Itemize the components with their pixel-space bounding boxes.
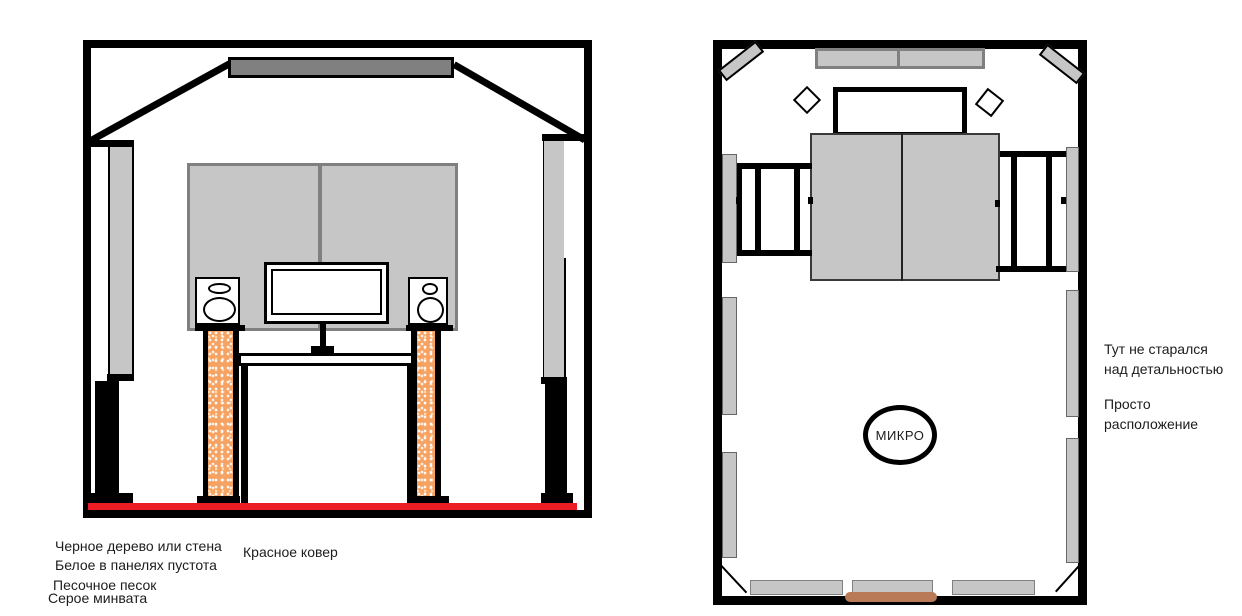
plan-ladder-right-rail-bottom: [996, 266, 1066, 272]
plan-nub-right-wall: [1061, 197, 1066, 204]
plan-wall-strip-left-1: [722, 154, 737, 263]
plan-nub-right-desk: [995, 200, 1000, 207]
wall-panel-left-cap-bottom: [107, 374, 134, 381]
note-detail-line-1: Тут не старался: [1104, 340, 1208, 358]
legend-mineral-wool: Серое минвата: [48, 589, 147, 607]
plan-desk-divider: [901, 133, 903, 281]
legend-red-carpet: Красное ковер: [243, 543, 338, 561]
plan-ladder-right-bar-1: [1011, 151, 1017, 272]
pillar-left: [95, 381, 119, 495]
plan-bottom-panel-1: [750, 580, 843, 595]
stand-right-pole-outer: [435, 331, 441, 496]
pillar-right-base: [541, 493, 573, 503]
wall-panel-right-edge-line: [564, 258, 566, 379]
mic-circle: МИКРО: [863, 405, 937, 465]
plan-nub-left-wall: [736, 197, 741, 204]
plan-ladder-left-rail-top: [734, 163, 812, 169]
paint-canvas: Черное дерево или стена Белое в панелях …: [0, 0, 1242, 616]
plan-wall-strip-right-3: [1066, 438, 1079, 563]
legend-black-wood: Черное дерево или стена: [55, 537, 222, 555]
note-detail-line-2: над детальностью: [1104, 360, 1223, 378]
plan-ladder-left-bar-2: [755, 163, 761, 256]
speaker-left-tweeter-icon: [208, 283, 231, 294]
stand-left-pole-inner: [233, 331, 239, 496]
wall-panel-left: [108, 147, 134, 376]
monitor: [264, 262, 389, 324]
monitor-stand-foot: [311, 346, 334, 353]
carpet: [88, 503, 577, 510]
legend-white-panels: Белое в панелях пустота: [55, 556, 217, 574]
monitor-screen: [271, 269, 382, 315]
plan-monitor-outline: [833, 87, 967, 137]
plan-ladder-left-bar-3: [794, 163, 800, 256]
wall-panel-right-cap-top: [542, 134, 586, 141]
speaker-right: [408, 277, 448, 325]
note-layout-line-2: расположение: [1104, 415, 1198, 433]
mic-label: МИКРО: [876, 428, 925, 443]
note-layout-line-1: Просто: [1104, 395, 1151, 413]
speaker-left: [195, 277, 240, 325]
ceiling-panel: [228, 57, 454, 78]
desk-leg-left: [241, 366, 248, 503]
wall-panel-right-cap-bottom: [541, 377, 567, 384]
plan-door-bar: [845, 592, 937, 602]
pillar-right: [545, 384, 567, 494]
plan-ladder-left-rail-bottom: [734, 250, 812, 256]
speaker-right-woofer-icon: [417, 297, 444, 323]
plan-bottom-panel-3: [952, 580, 1035, 595]
pillar-left-base: [90, 493, 133, 503]
plan-wall-strip-right-1: [1066, 147, 1079, 272]
plan-desk: [810, 133, 1000, 281]
speaker-right-tweeter-icon: [422, 283, 438, 295]
wall-panel-left-cap-top: [89, 140, 134, 147]
desk-top: [238, 353, 415, 366]
speaker-left-woofer-icon: [203, 297, 236, 322]
stand-right-sand-fill: [417, 331, 435, 496]
plan-wall-strip-right-2: [1066, 290, 1079, 417]
plan-top-panel-divider: [897, 48, 900, 69]
wall-panel-right: [543, 141, 564, 379]
stand-left-sand-fill: [208, 331, 233, 496]
plan-ladder-right-bar-2: [1046, 151, 1052, 272]
plan-wall-strip-left-3: [722, 452, 737, 558]
plan-wall-strip-left-2: [722, 297, 737, 415]
plan-top-panel: [815, 48, 985, 69]
plan-nub-left-desk: [808, 197, 813, 204]
